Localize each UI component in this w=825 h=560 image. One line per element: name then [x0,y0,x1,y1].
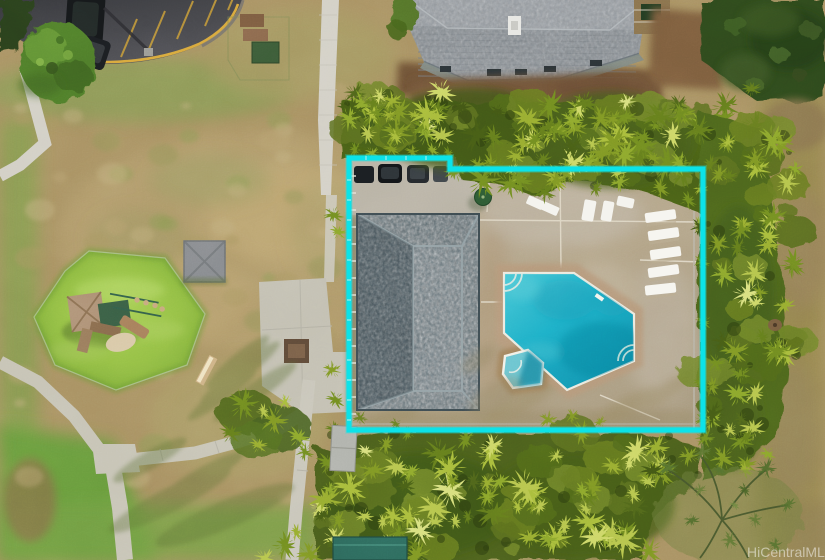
svg-text:HiCentralMLS: HiCentralMLS [747,544,825,560]
